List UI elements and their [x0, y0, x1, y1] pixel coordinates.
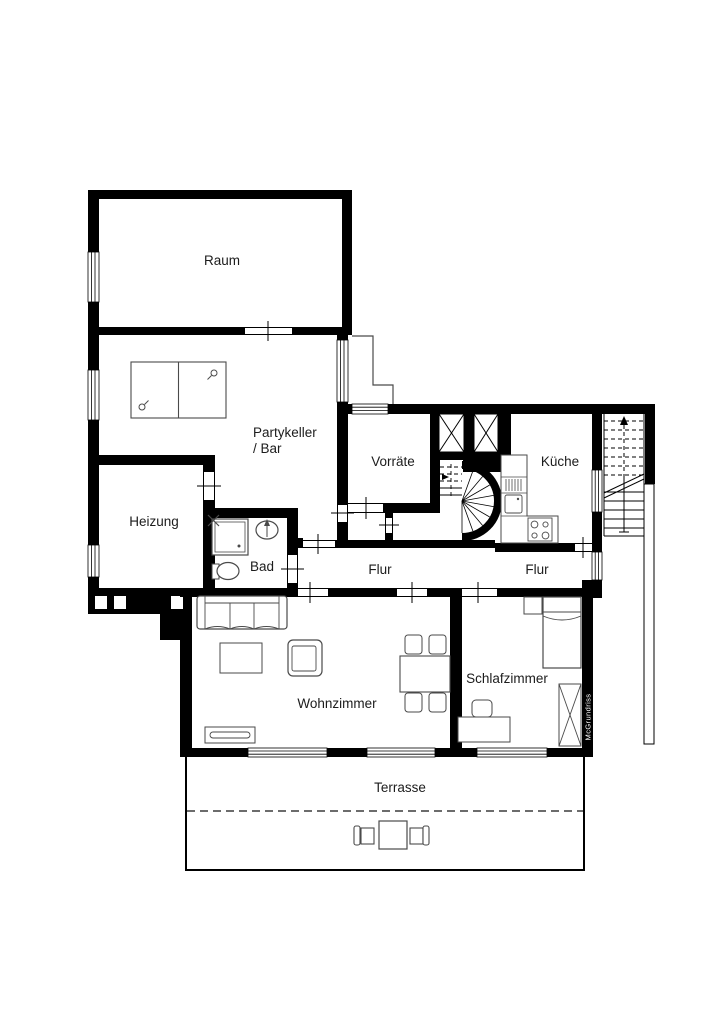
floorplan-page: Raum Partykeller / Bar Vorräte Küche Hei…	[0, 0, 724, 1024]
armchair	[288, 640, 322, 676]
bathroom-sink	[256, 519, 278, 539]
room-label-bad: Bad	[250, 559, 274, 575]
room-label-raum: Raum	[204, 253, 240, 269]
shower	[208, 515, 248, 555]
stove	[528, 518, 552, 541]
sideboard	[205, 727, 255, 743]
nightstand	[524, 597, 542, 614]
room-label-partykeller: Partykeller / Bar	[253, 425, 317, 457]
room-label-terrasse: Terrasse	[374, 780, 426, 796]
room-label-vorraete: Vorräte	[371, 454, 415, 470]
terrace-table	[379, 821, 407, 849]
toilet	[212, 563, 239, 580]
exterior-steps	[352, 336, 393, 404]
room-label-flur-right: Flur	[525, 562, 548, 578]
room-label-kueche: Küche	[541, 454, 579, 470]
bed	[543, 597, 581, 668]
watermark-text: McGrundriss	[584, 694, 593, 741]
room-label-wohnzimmer: Wohnzimmer	[297, 696, 376, 712]
wardrobe	[559, 684, 581, 746]
table-tennis-table	[131, 362, 226, 418]
terrace-outline	[185, 757, 585, 871]
floorplan-drawing	[0, 0, 724, 1024]
room-label-schlafzimmer: Schlafzimmer	[466, 671, 548, 687]
coffee-table	[220, 643, 262, 673]
exterior-walls	[88, 190, 655, 757]
desk	[458, 717, 510, 742]
dining-table	[400, 656, 450, 692]
desk-chair	[472, 700, 492, 717]
spiral-staircase	[440, 464, 498, 537]
sofa	[197, 596, 287, 629]
room-label-heizung: Heizung	[129, 514, 179, 530]
room-label-flur-left: Flur	[368, 562, 391, 578]
